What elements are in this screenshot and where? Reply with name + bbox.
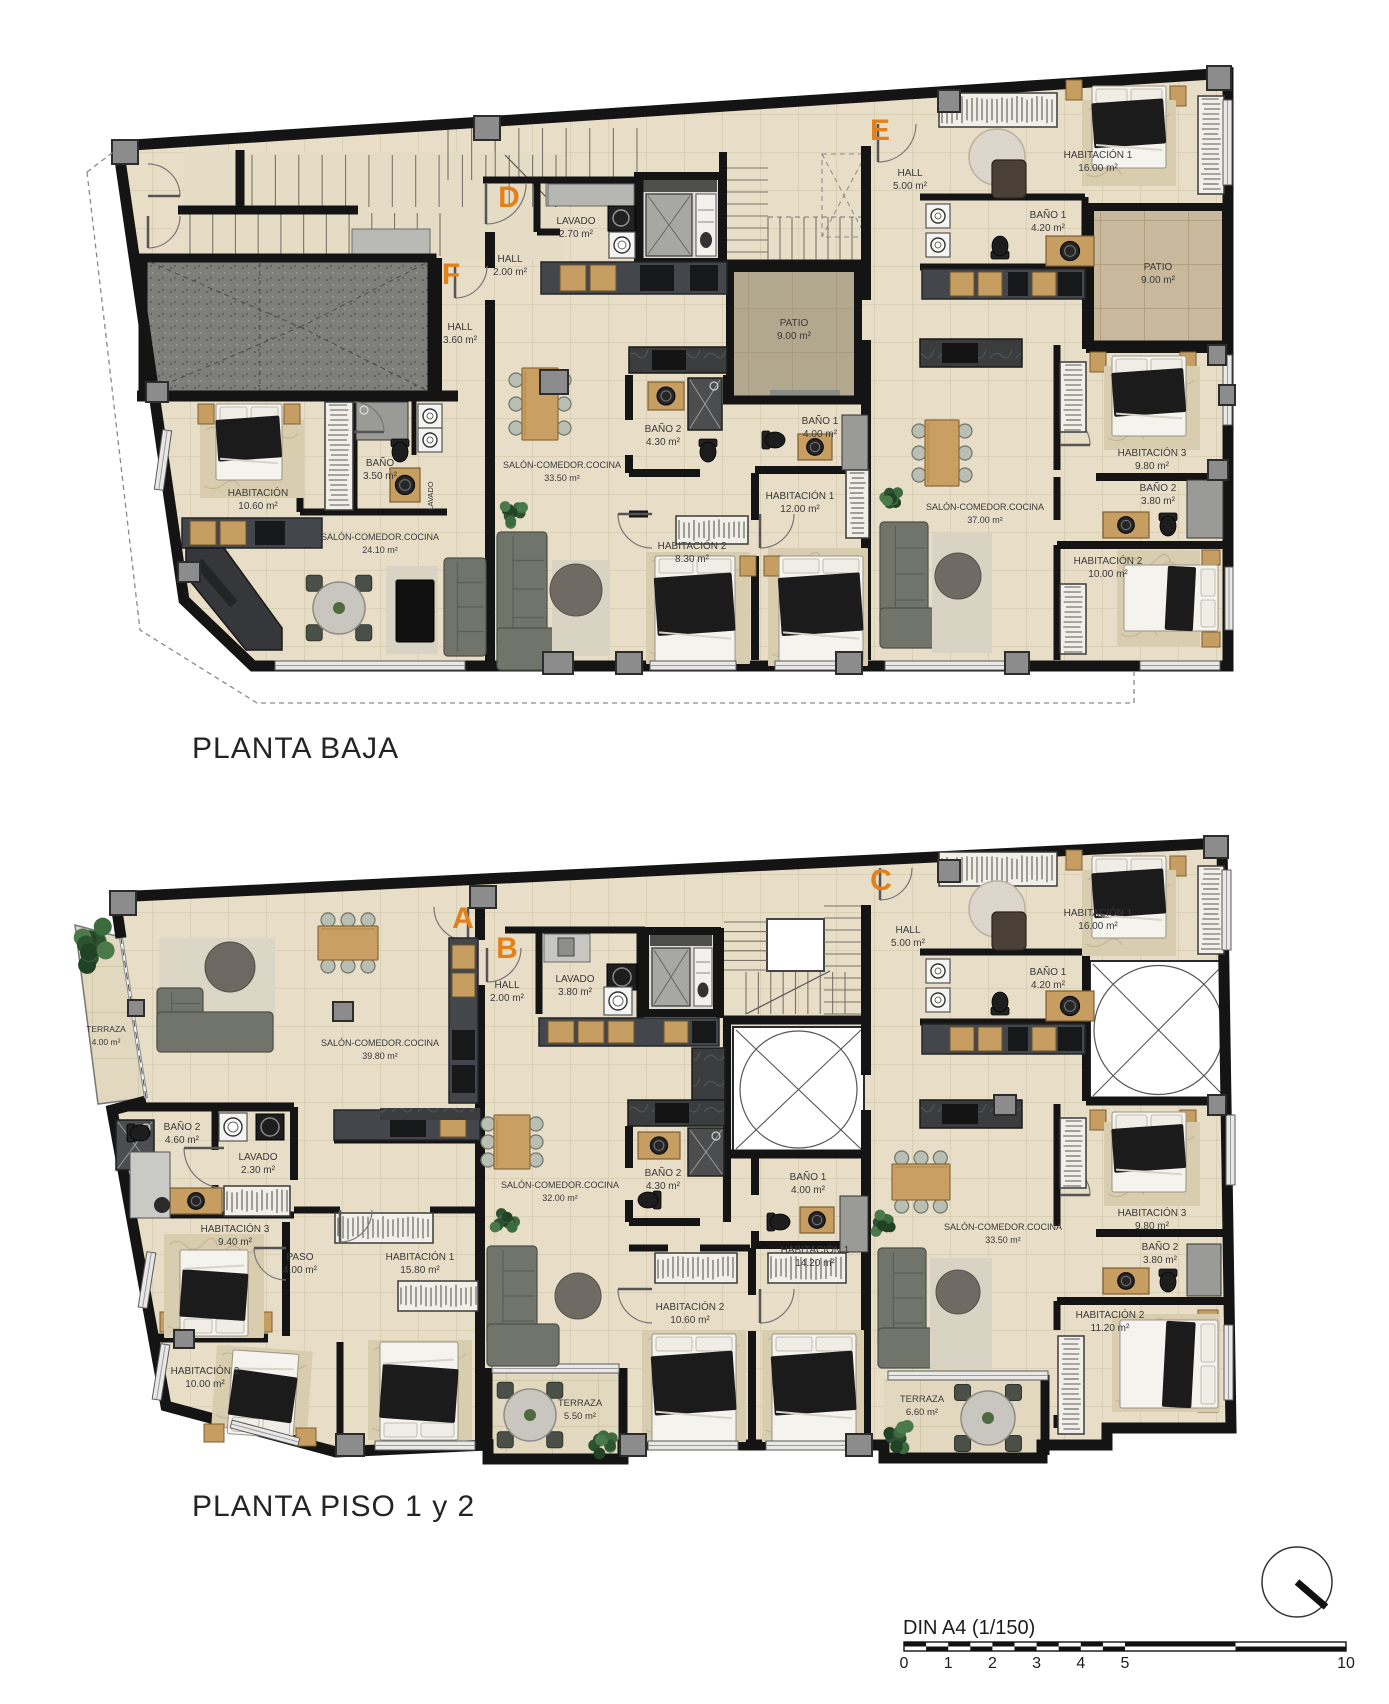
- svg-text:HABITACIÓN 3: HABITACIÓN 3: [1118, 1206, 1187, 1219]
- svg-text:SALÓN-COMEDOR.COCINA: SALÓN-COMEDOR.COCINA: [926, 502, 1044, 512]
- svg-text:4.00 m²: 4.00 m²: [92, 1037, 121, 1047]
- svg-text:HABITACIÓN 1: HABITACIÓN 1: [1064, 148, 1133, 161]
- svg-text:10.60 m²: 10.60 m²: [670, 1315, 710, 1326]
- svg-text:39.80 m²: 39.80 m²: [362, 1051, 398, 1061]
- svg-text:10.00 m²: 10.00 m²: [1088, 569, 1128, 580]
- svg-text:BAÑO 1: BAÑO 1: [1030, 208, 1067, 221]
- svg-text:E: E: [870, 114, 890, 147]
- svg-text:4.20 m²: 4.20 m²: [1031, 223, 1066, 234]
- svg-text:DIN A4 (1/150): DIN A4 (1/150): [903, 1617, 1035, 1639]
- svg-text:PASO: PASO: [286, 1252, 313, 1263]
- svg-text:F: F: [442, 258, 460, 291]
- svg-text:SALÓN-COMEDOR.COCINA: SALÓN-COMEDOR.COCINA: [501, 1180, 619, 1190]
- svg-text:3.50 m²: 3.50 m²: [363, 471, 398, 482]
- svg-text:9.40 m²: 9.40 m²: [218, 1237, 253, 1248]
- svg-text:HABITACIÓN 2: HABITACIÓN 2: [1074, 554, 1143, 567]
- svg-text:BAÑO 1: BAÑO 1: [802, 414, 839, 427]
- svg-text:0: 0: [900, 1655, 909, 1672]
- svg-text:9.80 m²: 9.80 m²: [1135, 461, 1170, 472]
- svg-text:HABITACIÓN 3: HABITACIÓN 3: [1118, 446, 1187, 459]
- svg-text:2.30 m²: 2.30 m²: [241, 1165, 276, 1176]
- svg-text:TERRAZA: TERRAZA: [558, 1398, 603, 1409]
- svg-text:3.80 m²: 3.80 m²: [1141, 496, 1176, 507]
- svg-text:2.70 m²: 2.70 m²: [559, 229, 594, 240]
- svg-text:4: 4: [1076, 1655, 1085, 1672]
- svg-text:BAÑO 2: BAÑO 2: [645, 422, 682, 435]
- svg-text:9.80 m²: 9.80 m²: [1135, 1221, 1170, 1232]
- svg-text:11.20 m²: 11.20 m²: [1091, 1323, 1130, 1334]
- svg-text:33.50 m²: 33.50 m²: [985, 1235, 1021, 1245]
- svg-text:HABITACIÓN 2: HABITACIÓN 2: [171, 1364, 240, 1377]
- svg-text:3.80 m²: 3.80 m²: [558, 987, 593, 998]
- svg-text:33.50 m²: 33.50 m²: [544, 473, 580, 483]
- svg-text:HALL: HALL: [447, 322, 472, 333]
- svg-text:24.10 m²: 24.10 m²: [362, 545, 398, 555]
- svg-text:4.30 m²: 4.30 m²: [646, 437, 681, 448]
- svg-text:LAVADO: LAVADO: [555, 974, 594, 985]
- svg-text:HABITACIÓN 2: HABITACIÓN 2: [658, 539, 727, 552]
- svg-text:HABITACIÓN 2: HABITACIÓN 2: [1076, 1308, 1145, 1321]
- svg-text:15.80 m²: 15.80 m²: [400, 1265, 440, 1276]
- svg-text:14.20 m²: 14.20 m²: [795, 1258, 835, 1269]
- svg-text:HABITACIÓN: HABITACIÓN: [228, 486, 288, 499]
- svg-text:HALL: HALL: [497, 254, 522, 265]
- svg-text:LAVADO: LAVADO: [556, 216, 595, 227]
- svg-text:HABITACIÓN 1: HABITACIÓN 1: [781, 1243, 850, 1256]
- svg-text:D: D: [498, 181, 520, 214]
- svg-text:BAÑO 2: BAÑO 2: [164, 1120, 201, 1133]
- svg-text:5.00 m²: 5.00 m²: [891, 938, 926, 949]
- svg-text:HABITACIÓN 1: HABITACIÓN 1: [766, 489, 835, 502]
- svg-text:3: 3: [1032, 1655, 1041, 1672]
- svg-text:4.00 m²: 4.00 m²: [283, 1265, 318, 1276]
- svg-text:1: 1: [944, 1655, 953, 1672]
- svg-text:HABITACIÓN 1: HABITACIÓN 1: [1064, 906, 1133, 919]
- svg-text:HALL: HALL: [895, 925, 920, 936]
- svg-text:PLANTA BAJA: PLANTA BAJA: [192, 732, 399, 765]
- svg-text:SALÓN-COMEDOR.COCINA: SALÓN-COMEDOR.COCINA: [321, 532, 439, 542]
- svg-text:5: 5: [1121, 1655, 1130, 1672]
- svg-text:HABITACIÓN 3: HABITACIÓN 3: [201, 1222, 270, 1235]
- svg-text:TERRAZA: TERRAZA: [86, 1024, 126, 1034]
- svg-text:HALL: HALL: [494, 980, 519, 991]
- svg-text:TERRAZA: TERRAZA: [900, 1394, 945, 1405]
- svg-text:C: C: [870, 864, 892, 897]
- svg-text:4.60 m²: 4.60 m²: [165, 1135, 200, 1146]
- svg-text:SALÓN-COMEDOR.COCINA: SALÓN-COMEDOR.COCINA: [503, 460, 621, 470]
- svg-text:5.00 m²: 5.00 m²: [893, 181, 928, 192]
- svg-text:3.60 m²: 3.60 m²: [443, 335, 478, 346]
- svg-text:6.60 m²: 6.60 m²: [906, 1407, 938, 1418]
- svg-text:SALÓN-COMEDOR.COCINA: SALÓN-COMEDOR.COCINA: [944, 1222, 1062, 1232]
- svg-text:8.30 m²: 8.30 m²: [675, 554, 710, 565]
- svg-text:10.00 m²: 10.00 m²: [185, 1379, 225, 1390]
- svg-text:BAÑO 2: BAÑO 2: [645, 1166, 682, 1179]
- svg-text:5.50 m²: 5.50 m²: [564, 1411, 596, 1422]
- svg-text:2.00 m²: 2.00 m²: [493, 267, 528, 278]
- svg-text:32.00 m²: 32.00 m²: [542, 1193, 578, 1203]
- svg-text:BAÑO 2: BAÑO 2: [1142, 1240, 1179, 1253]
- svg-text:4.20 m²: 4.20 m²: [1031, 980, 1066, 991]
- svg-text:10.60 m²: 10.60 m²: [238, 501, 278, 512]
- svg-text:PLANTA PISO 1 y 2: PLANTA PISO 1 y 2: [192, 1490, 475, 1523]
- svg-text:3.80 m²: 3.80 m²: [1143, 1255, 1178, 1266]
- svg-text:BAÑO 1: BAÑO 1: [1030, 965, 1067, 978]
- svg-text:9.00 m²: 9.00 m²: [777, 331, 812, 342]
- svg-text:4.30 m²: 4.30 m²: [646, 1181, 681, 1192]
- svg-text:BAÑO 1: BAÑO 1: [790, 1170, 827, 1183]
- svg-text:LAVADO: LAVADO: [426, 481, 435, 510]
- svg-text:16.00 m²: 16.00 m²: [1078, 921, 1118, 932]
- svg-text:HALL: HALL: [897, 168, 922, 179]
- svg-text:LAVADO: LAVADO: [238, 1152, 277, 1163]
- svg-text:HABITACIÓN 2: HABITACIÓN 2: [656, 1300, 725, 1313]
- svg-text:SALÓN-COMEDOR.COCINA: SALÓN-COMEDOR.COCINA: [321, 1038, 439, 1048]
- svg-text:4.00 m²: 4.00 m²: [803, 429, 838, 440]
- svg-text:BAÑO 2: BAÑO 2: [1140, 481, 1177, 494]
- svg-text:2: 2: [988, 1655, 997, 1672]
- svg-text:BAÑO: BAÑO: [366, 456, 395, 469]
- svg-text:HABITACIÓN 1: HABITACIÓN 1: [386, 1250, 455, 1263]
- svg-text:B: B: [496, 932, 518, 965]
- svg-text:37.00 m²: 37.00 m²: [967, 515, 1003, 525]
- svg-text:9.00 m²: 9.00 m²: [1141, 275, 1176, 286]
- svg-text:12.00 m²: 12.00 m²: [780, 504, 820, 515]
- svg-text:PATIO: PATIO: [1144, 262, 1173, 273]
- svg-text:2.00 m²: 2.00 m²: [490, 993, 525, 1004]
- svg-text:10: 10: [1337, 1655, 1355, 1672]
- svg-text:16.00 m²: 16.00 m²: [1078, 163, 1118, 174]
- svg-text:4.00 m²: 4.00 m²: [791, 1185, 826, 1196]
- svg-text:PATIO: PATIO: [780, 318, 809, 329]
